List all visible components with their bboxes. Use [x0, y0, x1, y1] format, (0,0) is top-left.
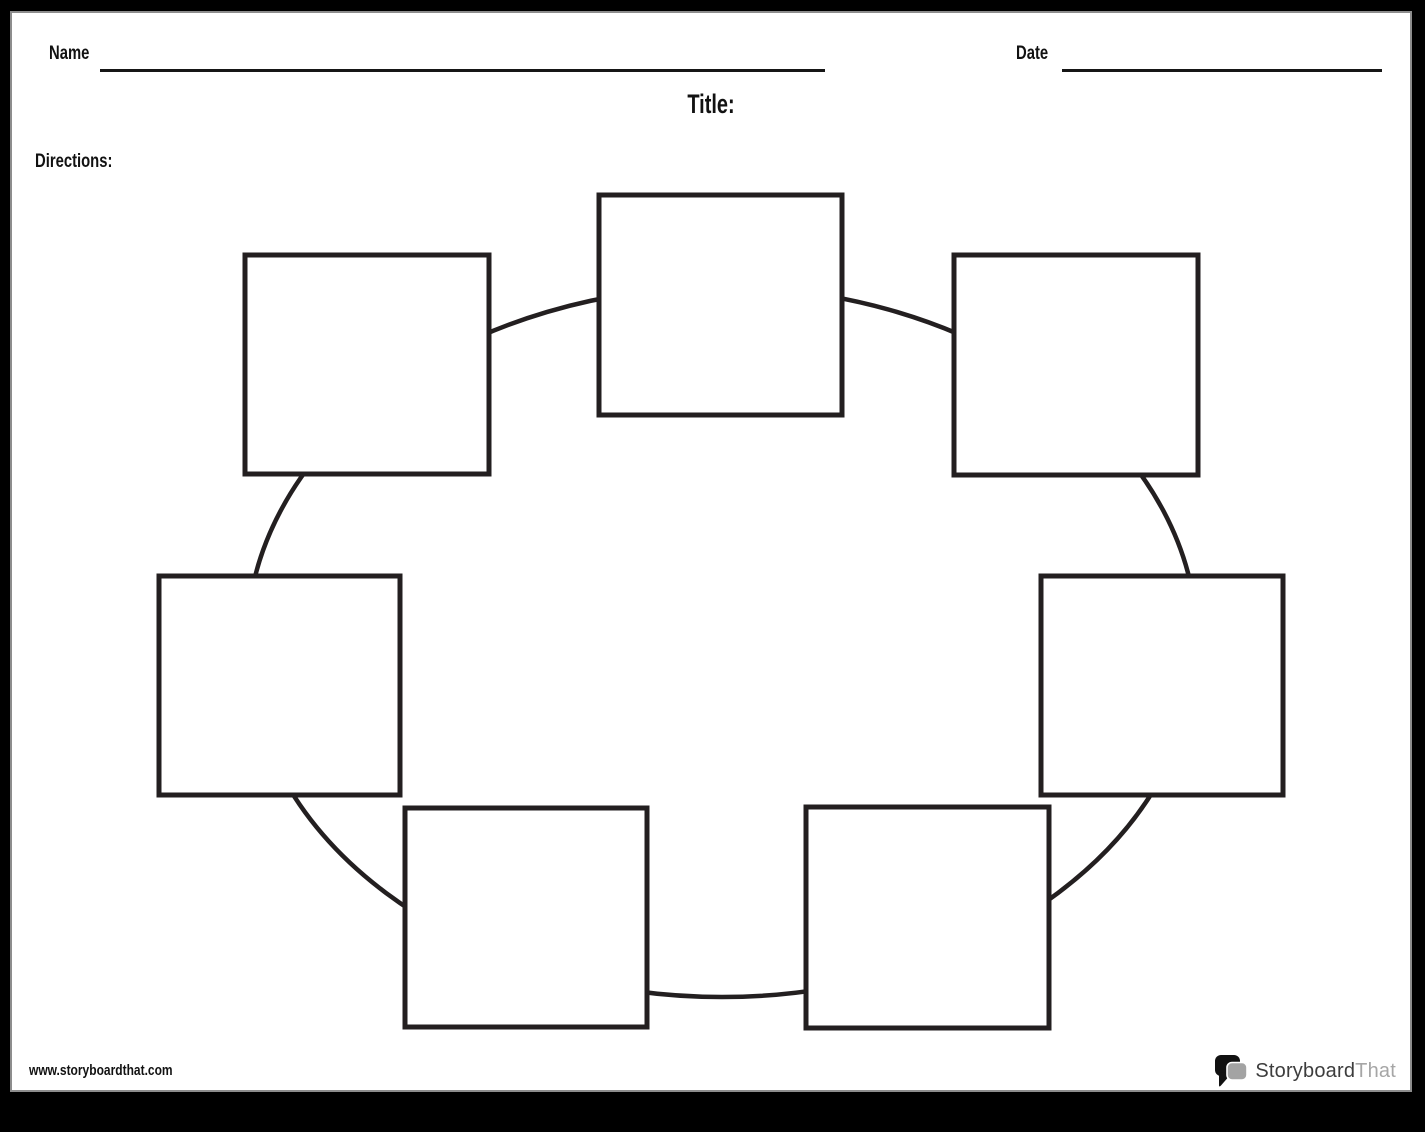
speech-bubbles-icon — [1214, 1054, 1248, 1088]
diagram-cell-top-right — [954, 255, 1198, 475]
circle-diagram — [12, 13, 1410, 1090]
logo-text-secondary: That — [1355, 1060, 1396, 1082]
diagram-cell-bottom-left — [405, 808, 647, 1027]
logo-text-primary: Storyboard — [1255, 1060, 1355, 1082]
diagram-cell-right — [1041, 576, 1283, 795]
diagram-cell-top — [599, 195, 842, 415]
storyboardthat-logo: StoryboardThat — [1214, 1054, 1396, 1088]
diagram-cell-left — [159, 576, 400, 795]
diagram-cell-top-left — [245, 255, 489, 474]
watermark-url: www.storyboardthat.com — [29, 1062, 208, 1080]
worksheet-page: Name Date Title: Directions: www.storybo… — [10, 11, 1412, 1092]
diagram-cell-bottom-right — [806, 807, 1049, 1028]
canvas-background: Name Date Title: Directions: www.storybo… — [0, 0, 1425, 1132]
logo-text: StoryboardThat — [1255, 1060, 1396, 1083]
